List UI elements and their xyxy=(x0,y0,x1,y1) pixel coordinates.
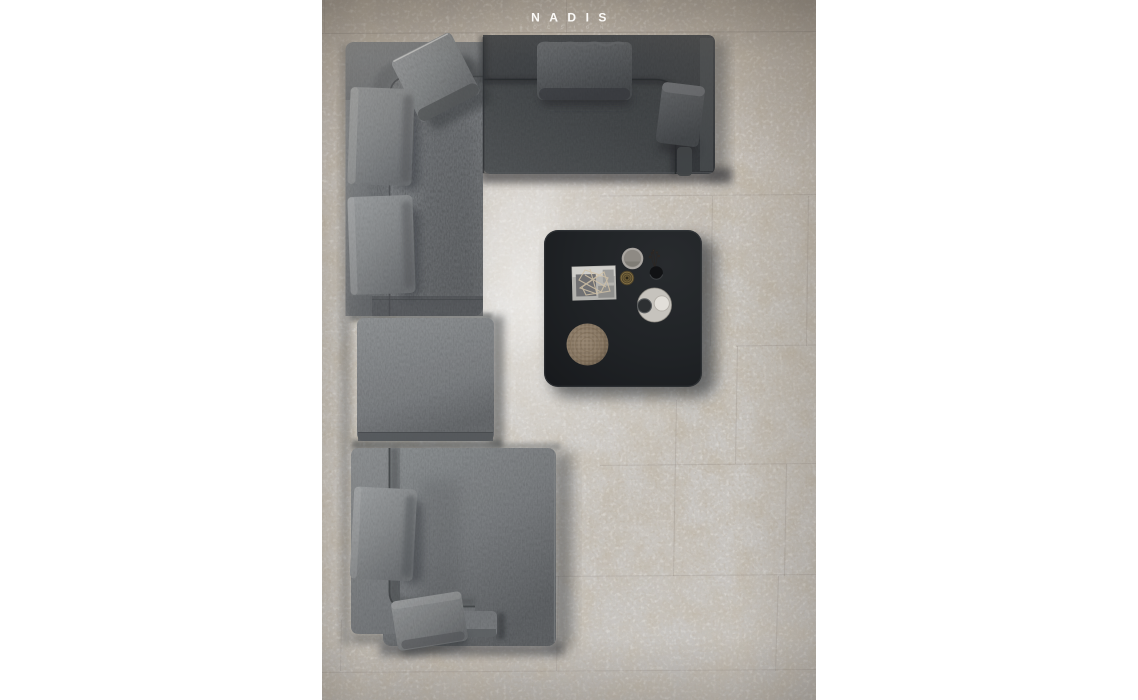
svg-text:DESIGN: DESIGN xyxy=(533,25,613,30)
svg-text:NADIS: NADIS xyxy=(531,11,616,25)
